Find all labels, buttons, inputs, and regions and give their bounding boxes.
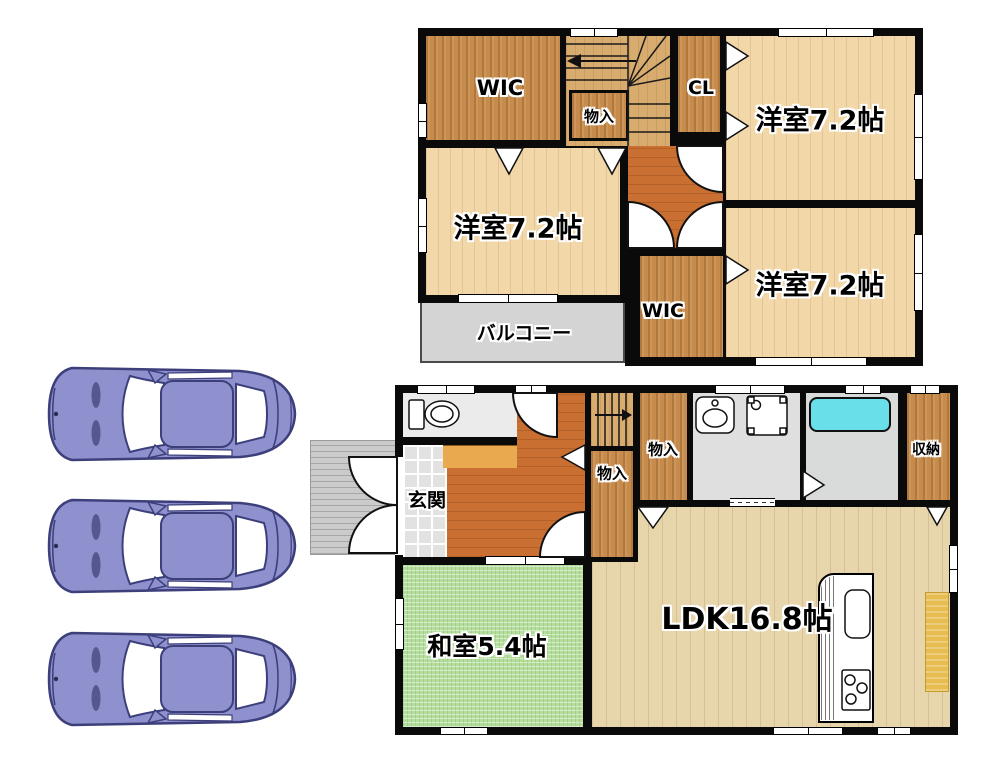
label-room-bottom-right: 洋室7.2帖 bbox=[756, 264, 885, 303]
window bbox=[778, 28, 874, 37]
room-hall-1f-upper bbox=[517, 393, 585, 557]
window bbox=[395, 598, 404, 650]
window bbox=[845, 385, 881, 394]
kitchen-mat bbox=[925, 592, 949, 692]
label-tatami-room: 和室5.4帖 bbox=[427, 627, 546, 663]
label-room-left: 洋室7.2帖 bbox=[454, 207, 583, 246]
label-cl: CL bbox=[688, 77, 714, 99]
room-toilet bbox=[403, 393, 517, 437]
window bbox=[773, 727, 843, 735]
window bbox=[515, 385, 547, 394]
entrance-porch bbox=[310, 440, 398, 555]
label-wic-bottom: WIC bbox=[642, 300, 684, 322]
window bbox=[914, 94, 923, 180]
window bbox=[570, 28, 618, 37]
floor1-plan: 玄関 物入 物入 収納 和室5.4帖 LDK16.8帖 bbox=[395, 385, 958, 735]
label-ldk: LDK16.8帖 bbox=[661, 594, 832, 638]
tatami-sliding-door bbox=[485, 556, 565, 565]
room-bathroom bbox=[806, 393, 898, 500]
label-balcony: バルコニー bbox=[477, 319, 572, 346]
entrance-step bbox=[443, 445, 517, 468]
car-2 bbox=[42, 494, 302, 598]
label-closet-upper: 物入 bbox=[648, 439, 678, 460]
label-room-top-right: 洋室7.2帖 bbox=[756, 99, 885, 138]
window bbox=[715, 385, 785, 394]
label-storage: 収納 bbox=[912, 439, 940, 459]
balcony-sliding-door bbox=[458, 294, 558, 303]
window bbox=[949, 545, 958, 593]
car-1 bbox=[42, 362, 302, 466]
floor-plan-image: WIC 物入 CL 洋室7.2帖 洋室7.2帖 洋室7.2帖 WIC バルコニー bbox=[0, 0, 1000, 769]
window bbox=[440, 727, 488, 735]
entrance-door-opening bbox=[395, 457, 404, 555]
room-stairs-1f bbox=[591, 393, 633, 446]
window bbox=[418, 103, 427, 138]
floor2-plan: WIC 物入 CL 洋室7.2帖 洋室7.2帖 洋室7.2帖 WIC バルコニー bbox=[418, 28, 923, 366]
car-3 bbox=[42, 627, 302, 731]
label-entrance: 玄関 bbox=[408, 486, 446, 513]
window bbox=[910, 385, 940, 394]
washroom-sliding-door bbox=[730, 498, 775, 507]
window bbox=[755, 357, 867, 366]
window bbox=[877, 727, 911, 735]
window bbox=[418, 198, 427, 253]
window bbox=[914, 234, 923, 311]
room-hall-2f bbox=[628, 146, 723, 248]
label-closet-2f: 物入 bbox=[584, 106, 614, 127]
window bbox=[417, 385, 475, 394]
room-washroom bbox=[693, 393, 800, 500]
label-wic-top: WIC bbox=[477, 76, 523, 100]
label-closet-lower: 物入 bbox=[597, 463, 627, 484]
